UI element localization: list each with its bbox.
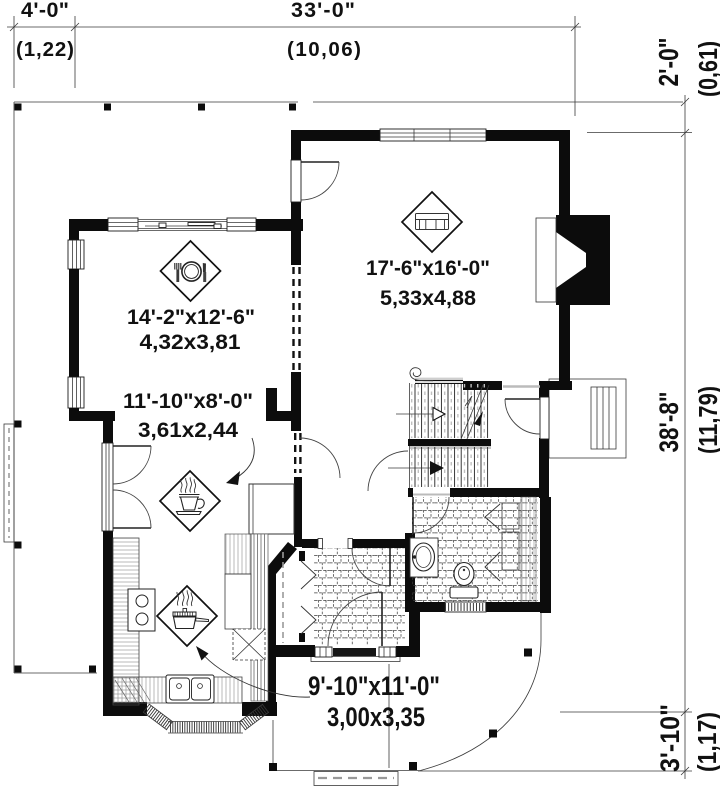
svg-text:17'-6"x16'-0": 17'-6"x16'-0" — [366, 256, 490, 280]
svg-text:14'-2"x12'-6": 14'-2"x12'-6" — [127, 305, 255, 329]
svg-text:4'-0": 4'-0" — [21, 0, 69, 22]
svg-text:(0,61): (0,61) — [693, 41, 720, 97]
svg-text:9'-10"x11'-0": 9'-10"x11'-0" — [308, 671, 440, 701]
svg-text:2'-0": 2'-0" — [653, 38, 684, 87]
svg-text:5,33x4,88: 5,33x4,88 — [380, 286, 476, 310]
svg-text:3,00x3,35: 3,00x3,35 — [327, 702, 425, 732]
svg-text:33'-0": 33'-0" — [291, 0, 355, 22]
svg-text:(11,79): (11,79) — [693, 386, 720, 454]
svg-text:3,61x2,44: 3,61x2,44 — [138, 418, 238, 442]
svg-text:3'-10": 3'-10" — [655, 704, 685, 772]
svg-text:4,32x3,81: 4,32x3,81 — [140, 330, 241, 354]
svg-text:(10,06): (10,06) — [287, 38, 361, 61]
svg-text:(1,22): (1,22) — [16, 38, 74, 61]
svg-text:11'-10"x8'-0": 11'-10"x8'-0" — [123, 389, 253, 413]
svg-text:38'-8": 38'-8" — [654, 392, 684, 453]
svg-text:(1,17): (1,17) — [692, 712, 720, 772]
